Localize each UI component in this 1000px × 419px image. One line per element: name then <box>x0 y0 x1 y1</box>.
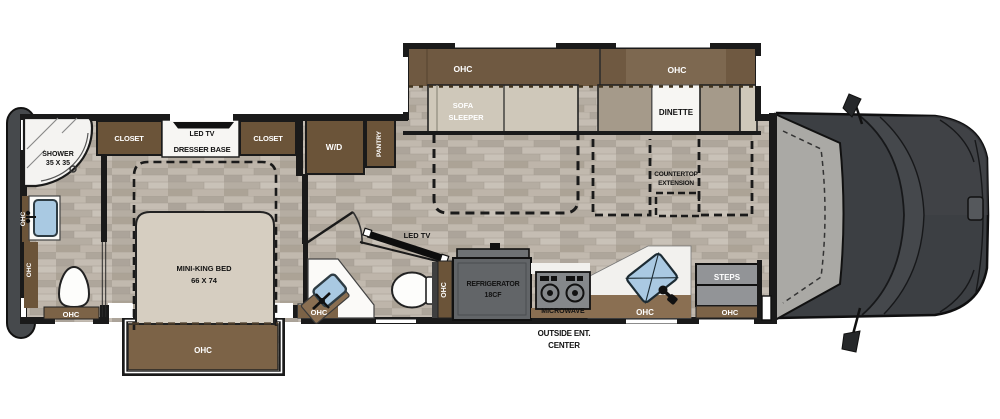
svg-text:SOFA: SOFA <box>453 101 474 110</box>
svg-text:18CF: 18CF <box>484 292 502 299</box>
svg-text:CENTER: CENTER <box>548 341 580 350</box>
svg-text:SLEEPER: SLEEPER <box>448 113 484 122</box>
svg-text:OHC: OHC <box>63 310 80 319</box>
svg-text:OHC: OHC <box>668 65 687 75</box>
svg-text:35 X 35: 35 X 35 <box>46 160 70 167</box>
svg-text:COUNTERTOP: COUNTERTOP <box>654 171 698 178</box>
svg-text:SHOWER: SHOWER <box>42 151 74 158</box>
svg-text:OHC: OHC <box>194 346 212 355</box>
svg-text:REFRIGERATOR: REFRIGERATOR <box>467 281 520 288</box>
svg-text:W/D: W/D <box>326 142 343 152</box>
svg-text:LED TV: LED TV <box>404 231 431 240</box>
svg-text:LED TV: LED TV <box>190 131 215 138</box>
svg-text:EXTENSION: EXTENSION <box>658 180 694 187</box>
svg-text:STEPS: STEPS <box>714 273 741 282</box>
svg-text:CLOSET: CLOSET <box>114 134 144 143</box>
svg-text:OHC: OHC <box>20 211 27 226</box>
svg-text:PANTRY: PANTRY <box>376 130 383 157</box>
svg-text:OHC: OHC <box>311 308 328 317</box>
svg-text:OHC: OHC <box>722 308 739 317</box>
svg-text:CLOSET: CLOSET <box>253 134 283 143</box>
svg-text:OHC: OHC <box>26 262 33 277</box>
svg-text:OHC: OHC <box>454 64 473 74</box>
svg-text:OUTSIDE ENT.: OUTSIDE ENT. <box>538 329 591 338</box>
svg-text:OHC: OHC <box>636 308 654 317</box>
svg-text:DRESSER BASE: DRESSER BASE <box>174 145 231 154</box>
svg-text:MINI-KING BED: MINI-KING BED <box>177 264 233 273</box>
svg-text:DINETTE: DINETTE <box>659 108 694 117</box>
svg-text:MICROWAVE: MICROWAVE <box>541 308 585 315</box>
svg-text:OHC: OHC <box>441 282 448 298</box>
svg-text:66 X 74: 66 X 74 <box>191 276 218 285</box>
